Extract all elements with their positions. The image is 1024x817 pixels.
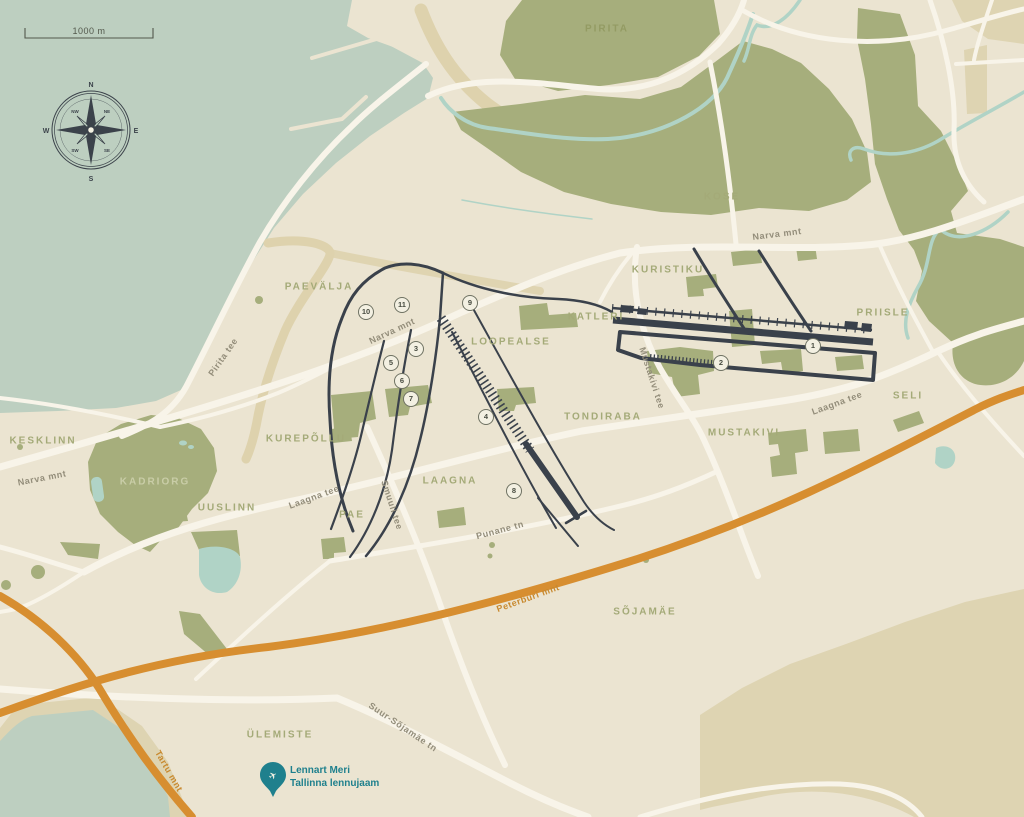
compass-w: W <box>43 128 50 135</box>
compass-nw: NW <box>71 109 79 114</box>
compass-s: S <box>89 176 94 183</box>
compass-ne: NE <box>104 109 110 114</box>
map-canvas: 1000 m N E S W NE SE SW NW <box>0 0 1024 817</box>
compass-n: N <box>88 82 93 89</box>
compass-e: E <box>134 128 139 135</box>
tallinn-map: 1000 m N E S W NE SE SW NW <box>0 0 1024 817</box>
airport-name-line1: Lennart Meri <box>290 765 350 776</box>
compass-se: SE <box>104 148 110 153</box>
airport-name-line2: Tallinna lennujaam <box>290 778 379 789</box>
scale-bar-label: 1000 m <box>72 26 105 36</box>
compass-sw: SW <box>71 148 79 153</box>
